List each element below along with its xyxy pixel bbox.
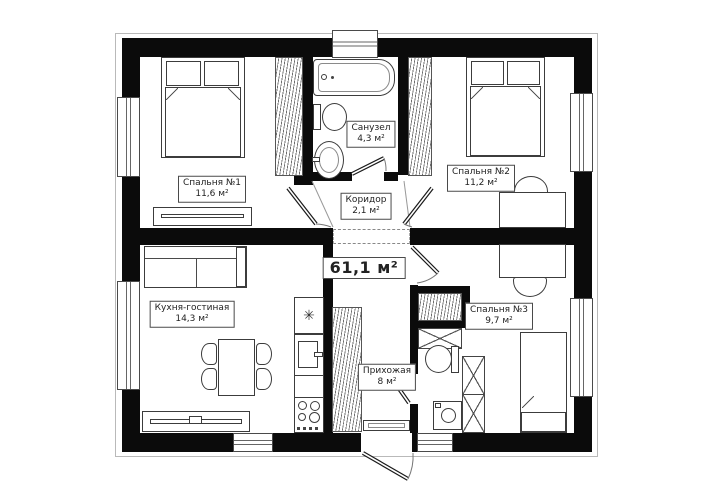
wall-left-1 — [122, 57, 140, 98]
bed1-pillow-right — [204, 61, 239, 86]
tv-mount — [189, 416, 202, 424]
room-area: 2,1 м² — [346, 206, 387, 217]
bathtub-drain — [331, 76, 334, 79]
dresser1-top-item — [161, 214, 244, 218]
stove-burner-1 — [298, 401, 307, 410]
floor-plan: ✳ — [0, 0, 710, 502]
room-name: Санузел — [351, 123, 390, 134]
dining-table — [218, 339, 255, 396]
room-area: 8 м² — [363, 377, 411, 388]
total-area-label: 61,1 м² — [323, 257, 406, 279]
room-name: Кухня-гостиная — [155, 303, 230, 314]
dining-chair-4 — [256, 368, 272, 390]
window-bathroom-top — [332, 30, 378, 58]
window-kitchen-left — [117, 281, 140, 390]
dining-chair-2 — [201, 368, 217, 390]
window-bedroom3-right — [570, 298, 593, 397]
bed2-pillow-left — [471, 61, 504, 85]
wall-mid-left — [140, 228, 333, 245]
wall-right-2 — [574, 171, 592, 299]
fridge: ✳ — [294, 297, 324, 334]
room-area: 4,3 м² — [351, 134, 390, 145]
toilet1-tank — [313, 104, 321, 130]
wall-bathroom-bedroom2 — [398, 57, 408, 175]
cabinet-bedroom3-upper — [462, 356, 485, 395]
total-area-value: 61,1 м² — [330, 258, 399, 278]
window-bedroom2-right — [570, 93, 593, 172]
window-bedroom1-left — [117, 97, 140, 177]
wall-top-left — [122, 38, 333, 57]
wall-mid-right — [410, 228, 574, 245]
bathtub-inner — [318, 63, 390, 92]
toilet1-bowl — [322, 103, 347, 131]
toilet2-bowl — [425, 345, 452, 373]
wall-right-1 — [574, 57, 592, 94]
bed1-fold-right — [228, 88, 240, 100]
sink-bathroom-tap — [312, 157, 320, 162]
fridge-icon: ✳ — [303, 308, 315, 324]
room-label-kitchen-living: Кухня-гостиная 14,3 м² — [150, 301, 235, 328]
room-area: 9,7 м² — [470, 316, 528, 327]
room-area: 14,3 м² — [155, 314, 230, 325]
sink-bathroom-inner — [319, 147, 339, 173]
washing-machine-drum — [441, 408, 456, 423]
opening-corridor-living — [333, 229, 410, 244]
wall-right-3 — [574, 396, 592, 433]
room-area: 11,2 м² — [452, 178, 510, 189]
wall-bottom-4 — [453, 433, 592, 452]
room-label-hallway: Прихожая 8 м² — [358, 364, 416, 391]
wall-hallway-wc-upper — [410, 285, 418, 374]
bed2-fold-right — [528, 87, 540, 99]
desk-bedroom2 — [499, 192, 566, 228]
cabinet-bedroom3-lower — [462, 394, 485, 433]
stove-burner-3 — [298, 413, 306, 421]
wall-left-3 — [122, 389, 140, 433]
stove-knobs — [297, 427, 321, 430]
wall-bottom-2 — [273, 433, 361, 452]
room-label-bedroom2: Спальня №2 11,2 м² — [447, 165, 515, 192]
dining-chair-3 — [256, 343, 272, 365]
entry-step-inner — [368, 423, 405, 428]
toilet2-tank — [451, 346, 459, 373]
wall-wc-wardrobe-bottom — [418, 321, 463, 328]
bed3-footer — [521, 412, 566, 432]
wall-wc-wardrobe-top — [418, 286, 463, 293]
room-name: Спальня №2 — [452, 167, 510, 178]
bed1-pillow-left — [166, 61, 201, 86]
bed1-fold-left — [166, 88, 178, 100]
washing-machine-panel — [435, 403, 441, 408]
room-area: 11,6 м² — [183, 189, 241, 200]
room-label-bathroom: Санузел 4,3 м² — [346, 121, 395, 148]
wall-bathroom-bottom-right — [384, 172, 398, 181]
dining-chair-1 — [201, 343, 217, 365]
room-name: Прихожая — [363, 366, 411, 377]
wall-jamb-bedroom1-door — [294, 176, 313, 185]
bathtub-faucet — [321, 74, 327, 80]
wall-left-2 — [122, 176, 140, 282]
wall-bottom-1 — [122, 433, 233, 452]
wardrobe-bedroom1 — [275, 57, 303, 176]
room-label-bedroom1: Спальня №1 11,6 м² — [178, 176, 246, 203]
bed3-fold — [522, 396, 534, 408]
room-label-bedroom3: Спальня №3 9,7 м² — [465, 303, 533, 330]
stove-burner-2 — [310, 401, 320, 411]
bed2-fold-left — [471, 87, 483, 99]
kitchen-sink-tap — [314, 352, 323, 357]
room-label-corridor: Коридор 2,1 м² — [341, 193, 392, 220]
room-name: Спальня №1 — [183, 178, 241, 189]
wall-hallway-wc-lower — [410, 404, 418, 433]
wall-top-right — [377, 38, 592, 57]
window-living-bottom — [233, 433, 273, 452]
room-name: Спальня №3 — [470, 305, 528, 316]
desk-bedroom3 — [499, 244, 566, 278]
window-entry-bottom — [417, 433, 453, 452]
wardrobe-wc — [418, 293, 462, 321]
stove-burner-4 — [309, 412, 320, 423]
bed2-pillow-right — [507, 61, 540, 85]
sofa-armrest — [236, 247, 246, 287]
room-name: Коридор — [346, 195, 387, 206]
sofa-seat-divider — [196, 259, 197, 287]
wardrobe-bedroom2 — [408, 57, 432, 176]
